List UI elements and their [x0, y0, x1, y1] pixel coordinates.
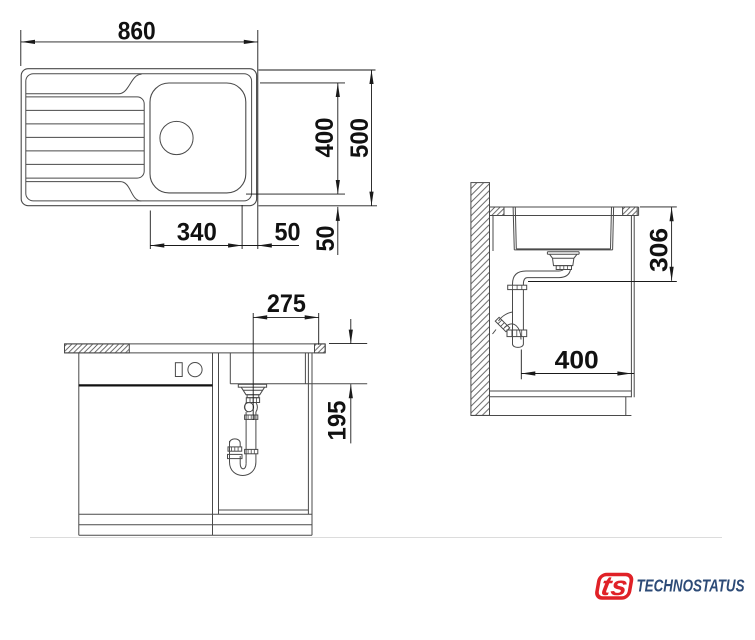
- svg-text:400: 400: [311, 118, 339, 158]
- svg-text:500: 500: [346, 118, 374, 158]
- svg-text:275: 275: [267, 290, 306, 318]
- svg-text:340: 340: [177, 218, 217, 246]
- svg-text:ts: ts: [599, 570, 630, 601]
- svg-text:50: 50: [312, 226, 340, 252]
- svg-text:195: 195: [324, 400, 352, 440]
- svg-text:860: 860: [118, 17, 156, 45]
- svg-text:306: 306: [646, 228, 674, 272]
- svg-text:50: 50: [275, 218, 301, 246]
- svg-text:TECHNOSTATUS: TECHNOSTATUS: [637, 576, 745, 596]
- svg-text:400: 400: [555, 347, 599, 375]
